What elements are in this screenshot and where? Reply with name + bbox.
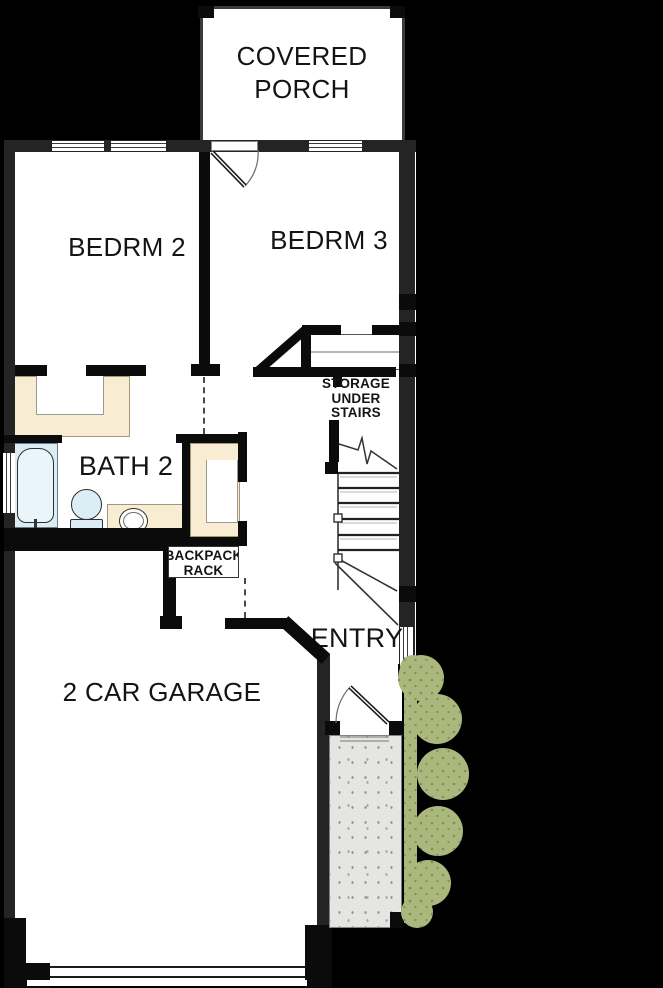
- entry-door-swing: [336, 687, 389, 741]
- shrubbery-texture: [398, 655, 469, 928]
- stair-break-line: [339, 438, 397, 469]
- stair-rail-diagonal: [335, 557, 397, 591]
- floor-plan: BACKPACK RACK COVERED PORCH BEDRM 2 BEDR…: [0, 0, 663, 988]
- wall-entry-diagonal: [284, 621, 326, 659]
- stair-newel: [334, 514, 342, 522]
- stair-newel: [334, 554, 342, 562]
- staircase: [334, 438, 399, 625]
- wall-storage-diagonal: [258, 330, 305, 371]
- plan-linework: [0, 0, 663, 988]
- stair-rail-diagonal: [335, 563, 398, 625]
- porch-door-swing: [212, 150, 258, 186]
